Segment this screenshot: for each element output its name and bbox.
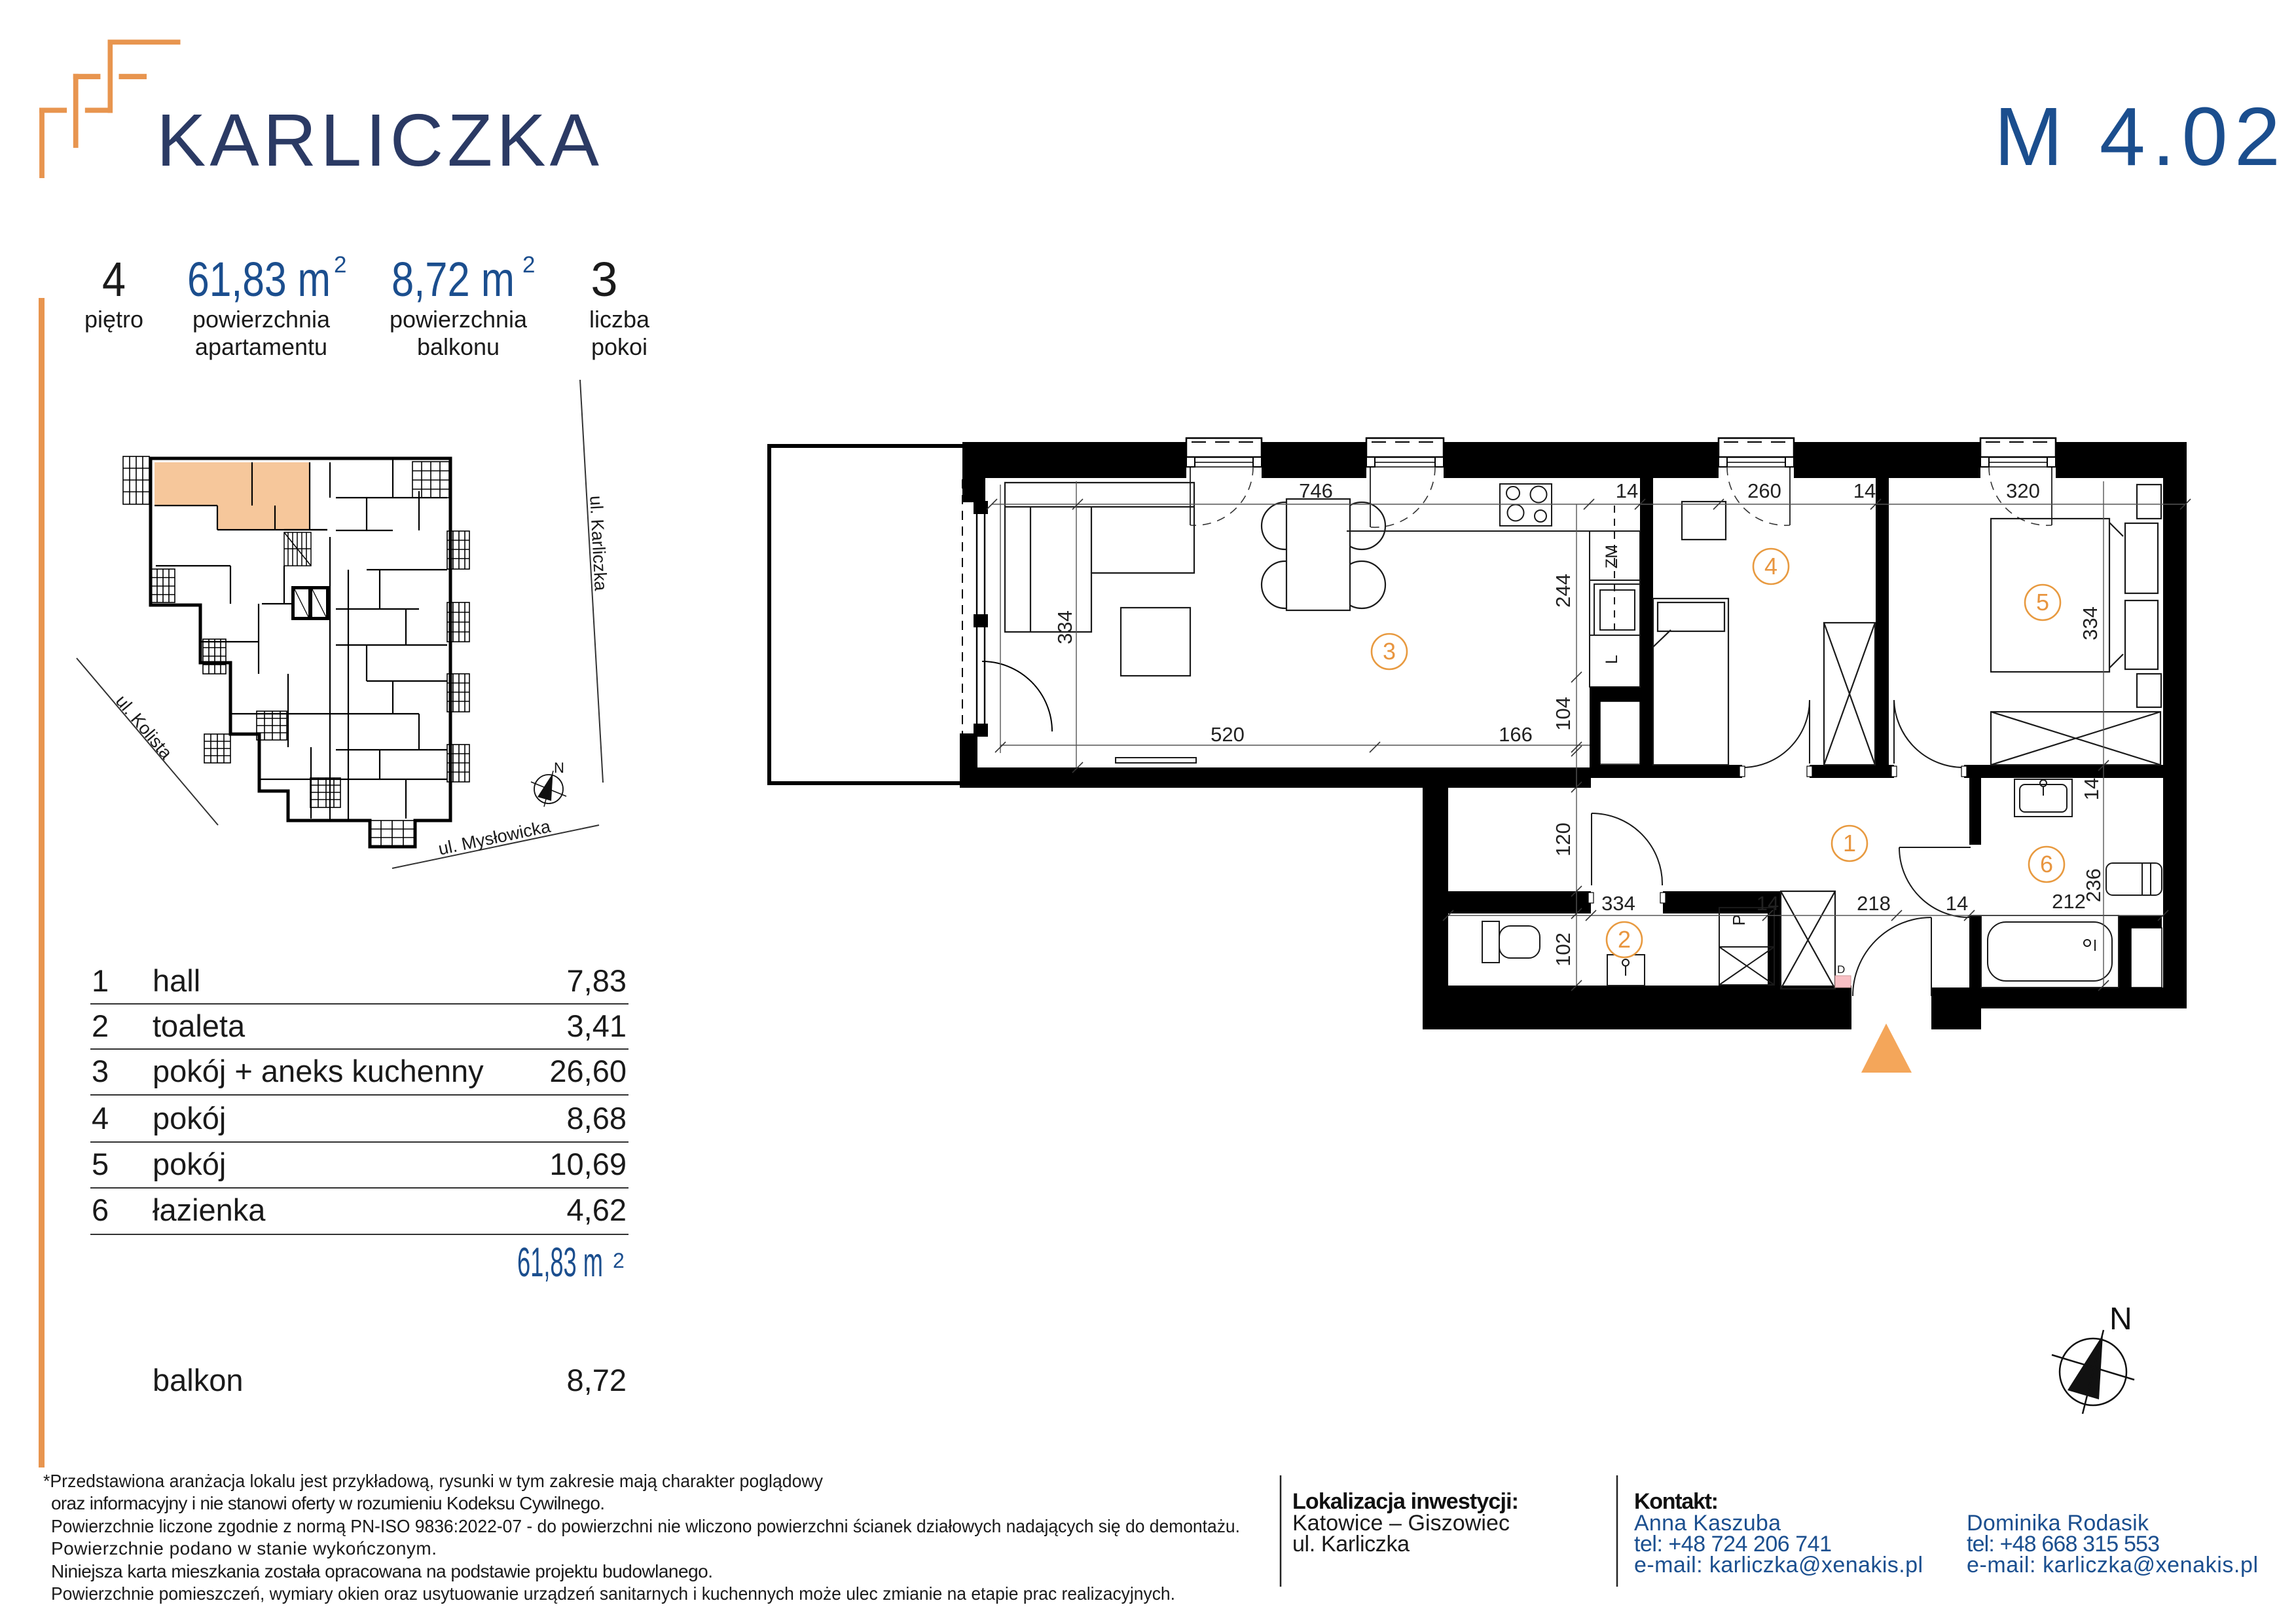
svg-text:212: 212: [2052, 890, 2086, 913]
svg-text:3: 3: [1383, 638, 1396, 665]
svg-text:ul. Karliczka: ul. Karliczka: [1292, 1532, 1410, 1557]
svg-text:Niniejsza karta mieszkania zos: Niniejsza karta mieszkania została oprac…: [51, 1561, 713, 1581]
svg-text:4: 4: [102, 252, 126, 306]
svg-text:3: 3: [591, 252, 617, 306]
svg-text:L: L: [1603, 655, 1621, 664]
svg-text:61,83 m: 61,83 m: [187, 252, 331, 306]
svg-text:Powierzchnie liczone zgodnie z: Powierzchnie liczone zgodnie z normą PN-…: [51, 1516, 1240, 1536]
svg-text:102: 102: [1552, 932, 1575, 967]
svg-text:8,72 m: 8,72 m: [392, 252, 515, 306]
svg-text:P: P: [1729, 914, 1749, 925]
svg-text:61,83 m: 61,83 m: [517, 1240, 603, 1285]
svg-text:320: 320: [2006, 479, 2040, 502]
svg-text:2: 2: [334, 252, 346, 278]
svg-text:KARLICZKA: KARLICZKA: [156, 99, 600, 181]
svg-text:hall: hall: [153, 963, 200, 998]
svg-text:balkonu: balkonu: [417, 333, 500, 360]
svg-text:D: D: [1837, 963, 1845, 976]
svg-text:218: 218: [1857, 892, 1891, 915]
svg-text:5: 5: [2036, 589, 2049, 616]
svg-text:N: N: [554, 760, 564, 776]
svg-text:*Przedstawiona aranżacja lokal: *Przedstawiona aranżacja lokalu jest prz…: [43, 1471, 823, 1491]
svg-text:14: 14: [2080, 778, 2103, 800]
svg-text:520: 520: [1211, 723, 1245, 746]
svg-text:N: N: [2109, 1302, 2132, 1337]
svg-text:3,41: 3,41: [567, 1008, 627, 1043]
svg-text:4: 4: [1764, 553, 1777, 580]
svg-text:104: 104: [1552, 697, 1575, 731]
svg-text:2: 2: [92, 1008, 109, 1043]
svg-text:6: 6: [2040, 851, 2053, 877]
svg-text:ZM: ZM: [1603, 545, 1621, 568]
svg-text:14: 14: [1616, 479, 1638, 502]
svg-text:244: 244: [1552, 574, 1575, 608]
svg-text:4: 4: [92, 1101, 109, 1135]
svg-text:4,62: 4,62: [567, 1192, 627, 1227]
svg-text:8,72: 8,72: [567, 1363, 627, 1397]
svg-text:powierzchnia: powierzchnia: [390, 306, 528, 333]
svg-text:balkon: balkon: [153, 1363, 244, 1397]
svg-text:14: 14: [1757, 892, 1779, 915]
svg-text:2: 2: [1618, 926, 1631, 953]
svg-text:236: 236: [2082, 868, 2105, 902]
svg-text:ul. Karliczka: ul. Karliczka: [586, 495, 611, 592]
svg-text:pokój: pokój: [153, 1101, 226, 1135]
svg-text:334: 334: [2079, 606, 2102, 640]
svg-text:2: 2: [522, 252, 535, 278]
svg-text:26,60: 26,60: [549, 1054, 627, 1088]
svg-text:1: 1: [92, 963, 109, 998]
svg-text:334: 334: [1601, 892, 1635, 915]
svg-text:e-mail: karliczka@xenakis.pl: e-mail: karliczka@xenakis.pl: [1967, 1553, 2258, 1578]
svg-text:ul. Kolista: ul. Kolista: [112, 692, 177, 764]
svg-text:pokój + aneks kuchenny: pokój + aneks kuchenny: [153, 1054, 484, 1088]
svg-text:piętro: piętro: [84, 306, 143, 333]
svg-text:oraz informacyjny i nie stanow: oraz informacyjny i nie stanowi oferty w…: [51, 1493, 605, 1513]
svg-text:toaleta: toaleta: [153, 1008, 246, 1043]
svg-text:120: 120: [1552, 822, 1575, 857]
svg-text:14: 14: [1853, 479, 1876, 502]
svg-text:746: 746: [1299, 479, 1333, 502]
svg-text:łazienka: łazienka: [153, 1192, 266, 1227]
svg-text:Powierzchnie pomieszczeń, wymi: Powierzchnie pomieszczeń, wymiary okien …: [51, 1583, 1175, 1604]
svg-text:pokój: pokój: [153, 1147, 226, 1181]
svg-text:14: 14: [1946, 892, 1968, 915]
svg-text:pokoi: pokoi: [591, 333, 647, 360]
svg-text:8,68: 8,68: [567, 1101, 627, 1135]
svg-text:334: 334: [1053, 610, 1076, 644]
svg-text:260: 260: [1747, 479, 1781, 502]
svg-text:liczba: liczba: [589, 306, 650, 333]
svg-text:3: 3: [92, 1054, 109, 1088]
svg-text:7,83: 7,83: [567, 963, 627, 998]
svg-text:5: 5: [92, 1147, 109, 1181]
svg-text:6: 6: [92, 1192, 109, 1227]
svg-text:Powierzchnie podano w stanie w: Powierzchnie podano w stanie wykończonym…: [51, 1538, 437, 1559]
svg-text:ul. Mysłowicka: ul. Mysłowicka: [437, 817, 553, 859]
svg-text:M 4.02: M 4.02: [1994, 90, 2280, 183]
svg-text:e-mail: karliczka@xenakis.pl: e-mail: karliczka@xenakis.pl: [1634, 1553, 1923, 1578]
svg-text:2: 2: [613, 1249, 625, 1272]
svg-text:1: 1: [1843, 830, 1856, 857]
svg-text:powierzchnia: powierzchnia: [192, 306, 331, 333]
svg-text:apartamentu: apartamentu: [195, 333, 327, 360]
svg-text:166: 166: [1499, 723, 1533, 746]
svg-text:10,69: 10,69: [549, 1147, 627, 1181]
